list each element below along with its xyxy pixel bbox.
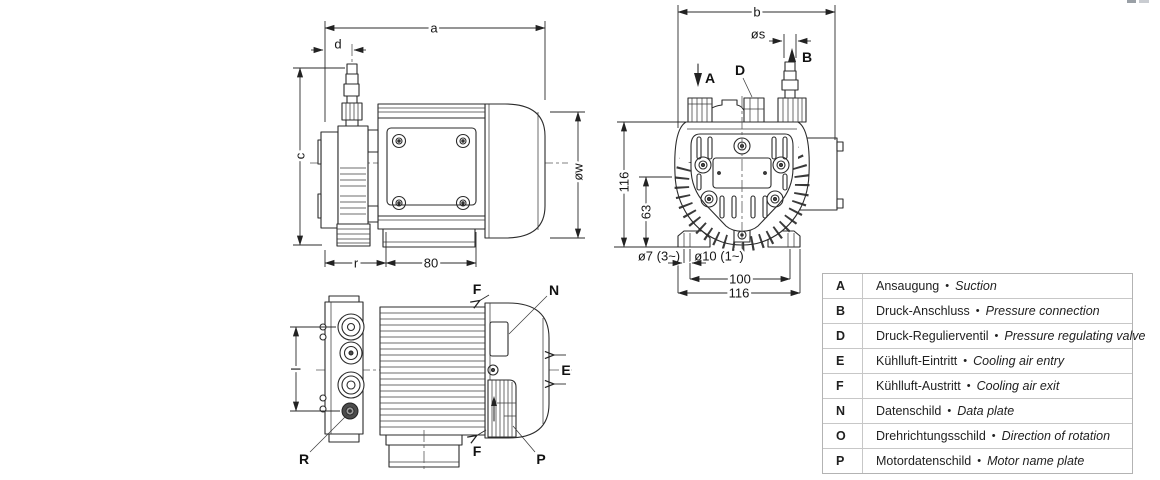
- table-row: O Drehrichtungsschild•Direction of rotat…: [823, 423, 1132, 448]
- dim-a-label: a: [430, 21, 438, 36]
- dim-c-label: c: [293, 152, 308, 159]
- legend-en: Cooling air entry: [973, 354, 1064, 368]
- label-N: N: [549, 282, 559, 298]
- dim-116h-label: 116: [729, 286, 750, 301]
- legend-en: Suction: [955, 279, 997, 293]
- legend-de: Kühlluft-Austritt: [876, 379, 961, 393]
- bullet-separator: •: [977, 455, 981, 467]
- suction-port: [688, 98, 712, 122]
- legend-key: E: [823, 349, 863, 373]
- table-row: A Ansaugung•Suction: [823, 274, 1132, 298]
- knurled-nut: [342, 103, 362, 120]
- table-row: F Kühlluft-Austritt•Cooling air exit: [823, 373, 1132, 398]
- dim-ow-label: øw: [571, 163, 586, 181]
- legend-de: Kühlluft-Eintritt: [876, 354, 957, 368]
- legend-key: A: [823, 274, 863, 298]
- suction-arrow-icon: [694, 73, 702, 87]
- dim-d-label: d: [334, 37, 341, 52]
- legend-key: B: [823, 299, 863, 323]
- legend-en: Pressure connection: [986, 304, 1100, 318]
- dim-o7-label: ø7 (3~): [638, 249, 680, 264]
- label-F-bottom: F: [473, 443, 482, 459]
- bullet-separator: •: [976, 305, 980, 317]
- legend-key: D: [823, 324, 863, 348]
- dim-63-label: 63: [639, 205, 654, 219]
- pressure-arrow-icon: [788, 48, 796, 62]
- bullet-separator: •: [947, 405, 951, 417]
- legend-de: Motordatenschild: [876, 454, 971, 468]
- legend-de: Datenschild: [876, 404, 941, 418]
- bullet-separator: •: [967, 380, 971, 392]
- dim-o10-label: ø10 (1~): [694, 249, 744, 264]
- legend-de: Druck-Anschluss: [876, 304, 970, 318]
- legend-en: Direction of rotation: [1002, 429, 1110, 443]
- regulating-valve: [744, 98, 764, 122]
- pump-dimension-drawing: a d c øw r 80: [0, 0, 1160, 480]
- motor-name-plate-area: [488, 380, 516, 437]
- side-view: a d c øw r 80: [293, 21, 586, 271]
- dim-r-label: r: [354, 256, 359, 271]
- legend-key: P: [823, 449, 863, 473]
- legend-en: Cooling air exit: [977, 379, 1060, 393]
- front-view: A D B b øs 116 63: [614, 5, 843, 301]
- legend-en: Pressure regulating valve: [1004, 329, 1145, 343]
- pump-base: [383, 229, 475, 247]
- legend-de: Ansaugung: [876, 279, 939, 293]
- dim-l-label: l: [289, 367, 304, 370]
- label-E: E: [561, 362, 570, 378]
- bullet-separator: •: [995, 330, 999, 342]
- legend-en: Data plate: [957, 404, 1014, 418]
- dim-b-label: b: [753, 5, 760, 20]
- motor-top: [485, 303, 549, 438]
- legend-key: F: [823, 374, 863, 398]
- pump-head-side: [318, 64, 378, 246]
- legend-key: O: [823, 424, 863, 448]
- label-P: P: [536, 451, 545, 467]
- top-view: l F N E F P R: [289, 281, 573, 472]
- dim-116v-label: 116: [617, 172, 632, 193]
- pump-body-top: [380, 307, 485, 472]
- label-B: B: [802, 49, 812, 65]
- label-F-top: F: [473, 281, 482, 297]
- label-D: D: [735, 62, 745, 78]
- legend-de: Drehrichtungsschild: [876, 429, 986, 443]
- label-R: R: [299, 451, 309, 467]
- legend-de: Druck-Regulierventil: [876, 329, 989, 343]
- hose-barb-fitting: [342, 64, 362, 126]
- legend-key: N: [823, 399, 863, 423]
- table-row: P Motordatenschild•Motor name plate: [823, 448, 1132, 473]
- table-row: N Datenschild•Data plate: [823, 398, 1132, 423]
- ui-artifact: [1139, 0, 1149, 3]
- motor-side: [485, 104, 545, 238]
- pump-housing-side: [378, 104, 485, 247]
- ui-artifact: [1127, 0, 1136, 3]
- label-A: A: [705, 70, 715, 86]
- table-row: B Druck-Anschluss•Pressure connection: [823, 298, 1132, 323]
- table-row: D Druck-Regulierventil•Pressure regulati…: [823, 323, 1132, 348]
- dim-os-label: øs: [751, 27, 766, 42]
- legend-en: Motor name plate: [987, 454, 1084, 468]
- pressure-port-barb: [778, 62, 806, 122]
- bullet-separator: •: [945, 280, 949, 292]
- bullet-separator: •: [992, 430, 996, 442]
- legend-table: A Ansaugung•Suction B Druck-Anschluss•Pr…: [822, 273, 1133, 474]
- dim-80-label: 80: [424, 256, 438, 271]
- data-plate: [490, 322, 508, 356]
- table-row: E Kühlluft-Eintritt•Cooling air entry: [823, 348, 1132, 373]
- dim-100-label: 100: [729, 272, 751, 287]
- bullet-separator: •: [963, 355, 967, 367]
